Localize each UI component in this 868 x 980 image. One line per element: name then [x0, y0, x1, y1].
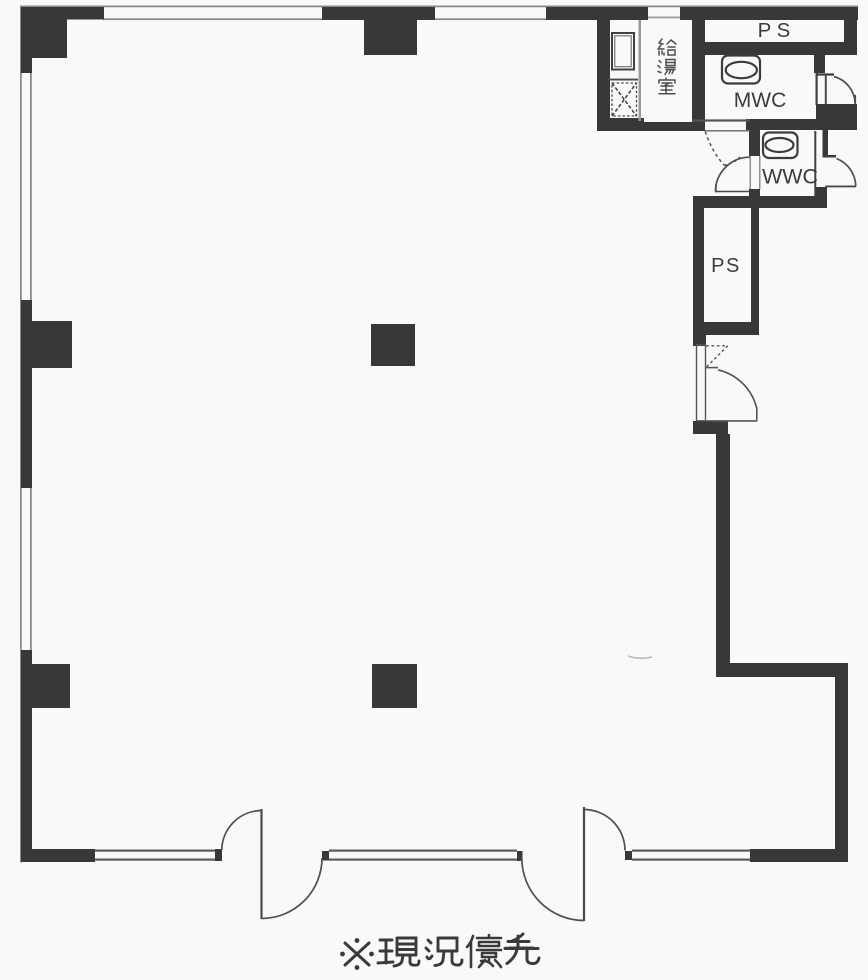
- svg-text:WWC: WWC: [762, 165, 818, 189]
- svg-text:MWC: MWC: [734, 89, 786, 112]
- svg-text:P S: P S: [758, 19, 791, 42]
- svg-text:PS: PS: [711, 255, 741, 277]
